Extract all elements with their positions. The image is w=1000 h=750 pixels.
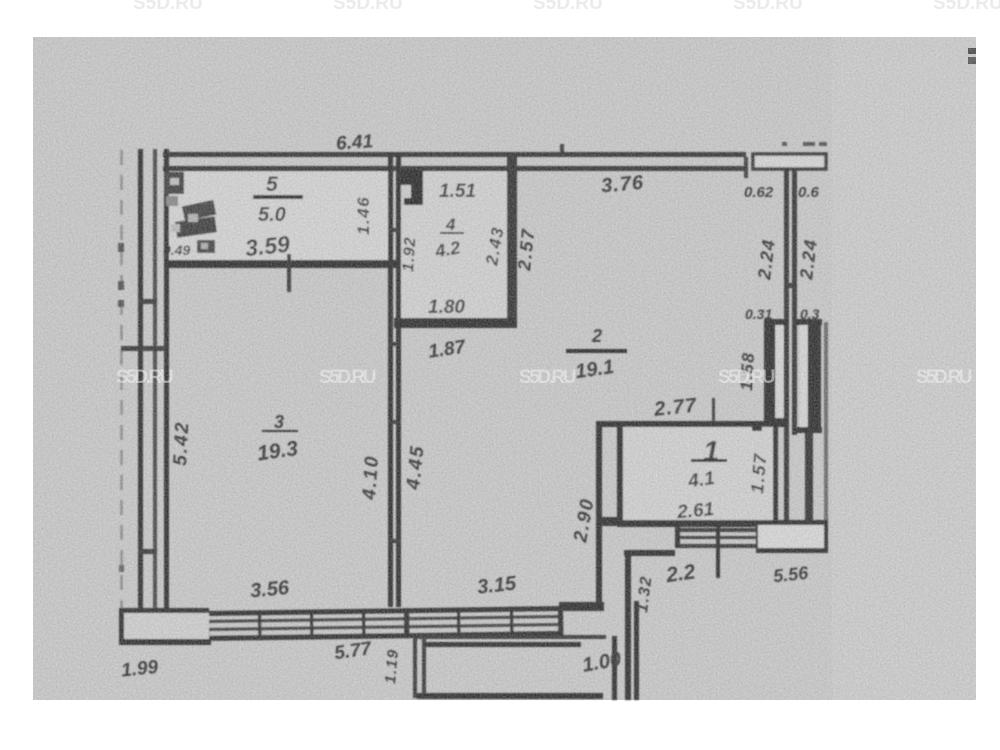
svg-text:S5D.RU: S5D.RU xyxy=(933,0,1000,14)
svg-text:S5D.RU: S5D.RU xyxy=(133,0,203,14)
svg-text:S5D.RU: S5D.RU xyxy=(733,0,803,14)
svg-text:S5D.RU: S5D.RU xyxy=(533,0,603,14)
svg-text:S5D.RU: S5D.RU xyxy=(333,0,403,14)
